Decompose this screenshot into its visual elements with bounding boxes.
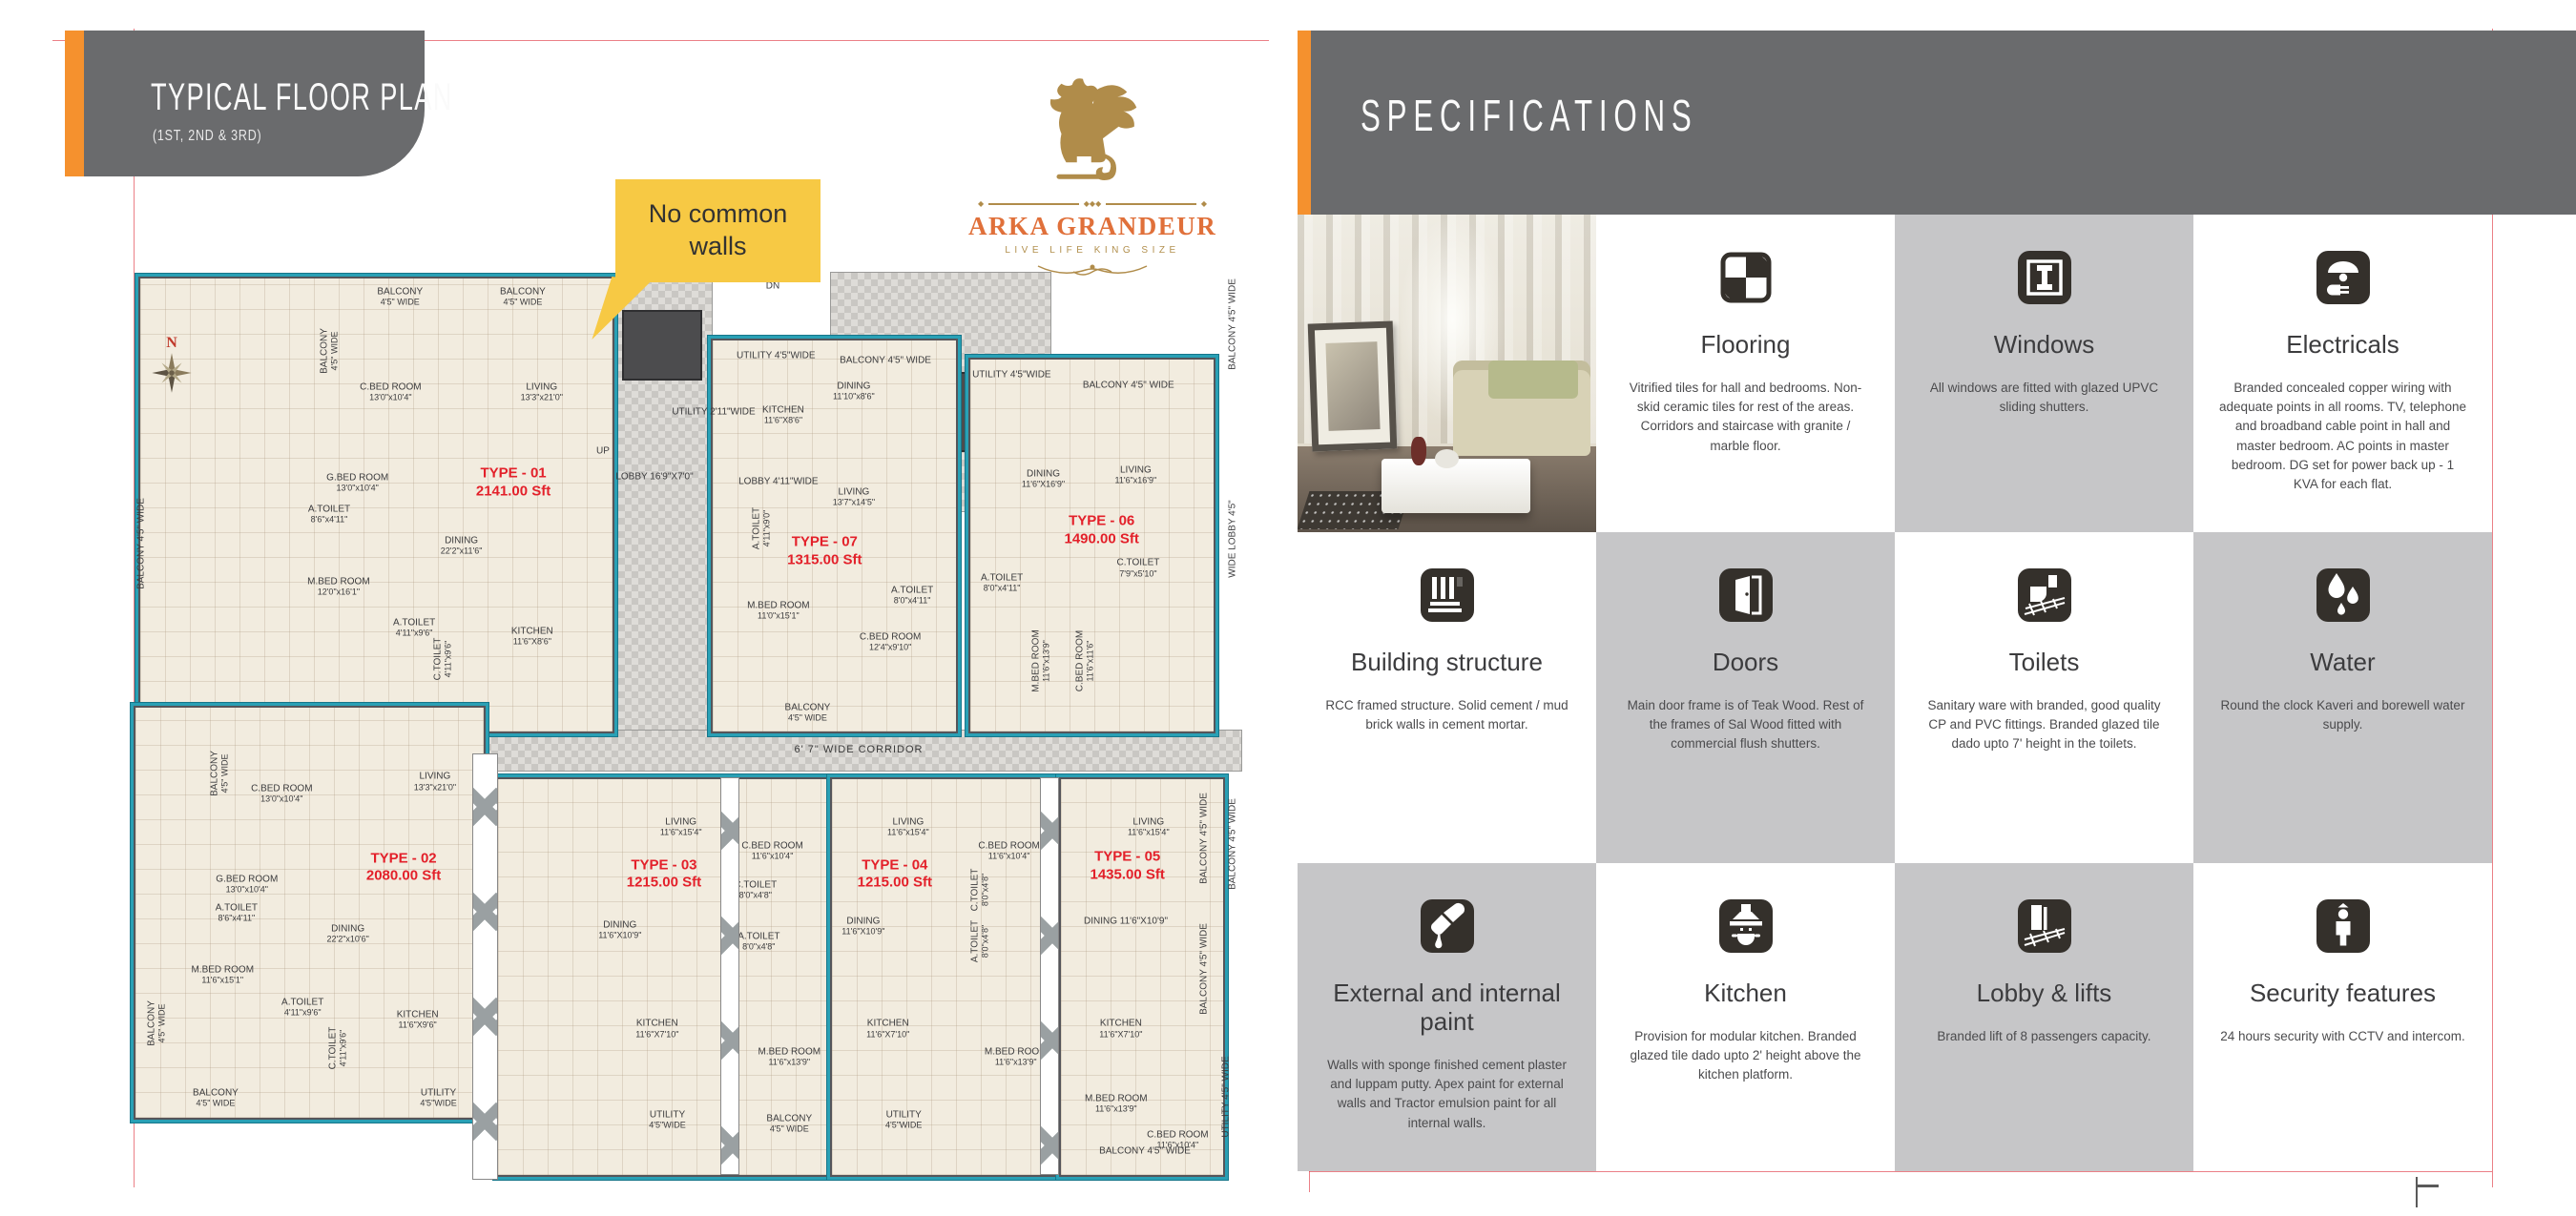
no-common-walls-callout: No common walls: [615, 179, 821, 282]
unit-type-02: TYPE - 022080.00 SftC.BED ROOM13'0"x10'4…: [134, 706, 486, 1120]
spec-card-text: All windows are fitted with glazed UPVC …: [1919, 379, 2170, 418]
spec-card-text: Vitrified tiles for hall and bedrooms. N…: [1620, 379, 1871, 456]
spec-card-title: Security features: [2224, 979, 2462, 1008]
unit-type-label: TYPE - 071315.00 Sft: [787, 534, 862, 570]
crop-mark: [1309, 1171, 2492, 1172]
spec-card-text: Main door frame is of Teak Wood. Rest of…: [1620, 696, 1871, 754]
flooring-tiles-icon: [1715, 247, 1776, 308]
winged-lion-icon: [1021, 76, 1164, 198]
room-label: BALCONY4'5" WIDE: [785, 702, 831, 722]
page-title: TYPICAL FLOOR PLAN: [151, 76, 453, 119]
unit-type-05: TYPE - 051435.00 SftLIVING11'6"x15'4"DIN…: [1059, 777, 1225, 1177]
room-label: KITCHEN11'6"X7'10": [635, 1019, 678, 1039]
room-label: A.TOILET8'0"x4'11": [981, 572, 1023, 592]
spec-card-title: Water: [2224, 649, 2462, 677]
spec-card-title: Kitchen: [1627, 979, 1865, 1008]
shaft-zone: [472, 753, 498, 1180]
kitchen-hood-icon: [1715, 896, 1776, 957]
room-label: DINING22'2"x11'6": [441, 536, 483, 556]
spec-card-title: Electricals: [2224, 331, 2462, 360]
room-label: A.TOILET8'0"x4'11": [891, 585, 933, 605]
room-label: BALCONY 4'5" WIDE: [1198, 923, 1209, 1015]
compass-rose-icon: [150, 351, 194, 395]
room-label: M.BED ROOM11'6"x15'1": [191, 964, 254, 984]
room-label: UTILITY4'5"WIDE: [649, 1109, 685, 1129]
brand-tagline: LIVE LIFE KING SIZE: [968, 245, 1216, 256]
window-icon: [2014, 247, 2075, 308]
unit-type-01: TYPE - 012141.00 SftBALCONY4'5" WIDEBALC…: [138, 277, 614, 733]
spec-card-title: Doors: [1627, 649, 1865, 677]
room-label: LIVING11'6"x16'9": [1115, 464, 1157, 484]
trim-tick: [2418, 1185, 2439, 1187]
room-label: BALCONY 4'5" WIDE: [1198, 793, 1209, 884]
lift-zone: [622, 310, 702, 381]
room-label: KITCHEN11'6"X8'6": [762, 404, 804, 424]
room-label: A.TOILET4'11"x9'6": [393, 617, 435, 637]
spec-card-electricals: ElectricalsBranded concealed copper wiri…: [2193, 215, 2492, 532]
room-label: BALCONY4'5" WIDE: [146, 1000, 166, 1046]
spec-card-toilets: ToiletsSanitary ware with branded, good …: [1895, 532, 2193, 863]
room-label: LIVING13'7"x14'5": [833, 486, 875, 506]
room-label: KITCHEN11'6"X7'10": [1099, 1019, 1142, 1039]
plan-label: UTILITY 4'5" WIDE: [1220, 1056, 1231, 1137]
room-label: M.BED ROOM11'6"x13'9": [1030, 629, 1050, 692]
room-label: BALCONY4'5" WIDE: [319, 328, 339, 374]
right-header-accent-bar: [1298, 31, 1311, 215]
shaft-zone: [720, 777, 739, 1175]
room-label: C.TOILET8'0"x4'8": [734, 880, 777, 900]
room-label: G.BED ROOM13'0"x10'4": [326, 472, 388, 492]
logo-divider: ◆◆◆◆◆: [978, 200, 1207, 208]
room-label: KITCHEN11'6"X9'6": [397, 1009, 439, 1029]
room-label: A.TOILET8'0"x4'8": [737, 932, 779, 952]
room-label: M.BED ROOM11'6"x13'9": [758, 1046, 821, 1066]
plan-label: BALCONY 4'5" WIDE: [1099, 1145, 1191, 1156]
room-label: M.BED ROOM12'0"x16'1": [307, 576, 370, 596]
compass-north-label: N: [141, 336, 202, 351]
interior-photo: [1298, 215, 1596, 532]
left-header-banner: TYPICAL FLOOR PLAN (1ST, 2ND & 3RD): [84, 31, 425, 176]
room-label: LIVING11'6"x15'4": [1128, 816, 1170, 836]
right-header-banner: SPECIFICATIONS: [1311, 31, 2576, 215]
room-label: M.BED ROOM11'6"x13'9": [1085, 1094, 1148, 1114]
spec-card-text: Branded lift of 8 passengers capacity.: [1919, 1027, 2170, 1046]
spec-card-title: Toilets: [1925, 649, 2164, 677]
room-label: C.BED ROOM11'6"x11'6": [1074, 630, 1094, 691]
room-label: M.BED ROOM11'6"x13'9": [985, 1046, 1048, 1066]
unit-type-07: TYPE - 071315.00 SftUTILITY 4'5"WIDEBALC…: [711, 339, 958, 733]
room-label: C.TOILET8'0"x4'8": [969, 869, 989, 912]
plan-label: BALCONY 4'5" WIDE: [135, 498, 146, 589]
spec-card-flooring: FlooringVitrified tiles for hall and bed…: [1596, 215, 1895, 532]
room-label: BALCONY4'5" WIDE: [209, 751, 229, 796]
spec-card-security-features: Security features24 hours security with …: [2193, 863, 2492, 1171]
room-label: UTILITY 4'5"WIDE: [972, 369, 1051, 380]
electrical-icon: [2313, 247, 2374, 308]
room-label: LIVING13'3"x21'0": [414, 772, 456, 792]
unit-type-label: TYPE - 022080.00 Sft: [366, 850, 441, 886]
room-label: LIVING11'6"x15'4": [887, 816, 929, 836]
corridor-label: 6' 7" WIDE CORRIDOR: [477, 730, 1240, 770]
spec-card-text: Branded concealed copper wiring with ade…: [2217, 379, 2468, 495]
room-label: BALCONY4'5" WIDE: [377, 286, 423, 306]
room-label: C.BED ROOM12'4"x9'10": [860, 631, 921, 651]
room-label: C.TOILET4'11"x9'6": [327, 1026, 347, 1069]
spec-card-text: Provision for modular kitchen. Branded g…: [1620, 1027, 1871, 1085]
plan-label: LOBBY 16'9"X7'0": [615, 471, 693, 482]
spec-card-text: Sanitary ware with branded, good quality…: [1919, 696, 2170, 754]
room-label: C.BED ROOM13'0"x10'4": [251, 784, 312, 804]
room-label: LOBBY 4'11"WIDE: [738, 476, 818, 486]
room-label: G.BED ROOM13'0"x10'4": [216, 874, 278, 894]
trim-tick: [2416, 1177, 2418, 1207]
callout-line2: walls: [689, 231, 746, 263]
spec-card-windows: WindowsAll windows are fitted with glaze…: [1895, 215, 2193, 532]
room-label: A.TOILET8'0"x4'8": [969, 920, 989, 962]
callout-line1: No common: [649, 198, 788, 231]
room-label: BALCONY 4'5" WIDE: [840, 355, 931, 365]
spec-card-water: WaterRound the clock Kaveri and borewell…: [2193, 532, 2492, 863]
unit-type-label: TYPE - 041215.00 Sft: [858, 856, 932, 893]
spec-card-title: Flooring: [1627, 331, 1865, 360]
security-guard-icon: [2313, 896, 2374, 957]
specifications-title: SPECIFICATIONS: [1361, 90, 1698, 141]
plan-label: WIDE LOBBY 4'5": [1227, 500, 1237, 577]
plan-label: DN: [766, 280, 779, 291]
lift-icon: [2014, 896, 2075, 957]
room-label: A.TOILET4'11"x9'6": [281, 997, 323, 1017]
water-drops-icon: [2313, 565, 2374, 626]
brand-name: ARKA GRANDEUR: [968, 212, 1216, 241]
room-label: C.BED ROOM11'6"x10'4": [741, 840, 802, 860]
spec-card-text: Round the clock Kaveri and borewell wate…: [2217, 696, 2468, 735]
spec-card-title: Lobby & lifts: [1925, 979, 2164, 1008]
unit-type-label: TYPE - 012141.00 Sft: [476, 464, 551, 501]
room-label: UTILITY4'5"WIDE: [420, 1087, 456, 1107]
room-label: LIVING13'3"x21'0": [521, 381, 563, 402]
room-label: DINING22'2"x10'6": [326, 923, 368, 943]
photo-vase: [1411, 437, 1426, 465]
room-label: BALCONY4'5" WIDE: [193, 1087, 239, 1107]
brand-logo: ◆◆◆◆◆ ARKA GRANDEUR LIVE LIFE KING SIZE: [968, 76, 1216, 284]
room-label: A.TOILET4'11"x9'0": [751, 507, 771, 549]
floor-plan: 6' 7" WIDE CORRIDOR TYPE - 012141.00 Sft…: [76, 272, 1245, 1178]
left-header-accent-bar: [65, 31, 84, 176]
plan-label: BALCONY 4'5" WIDE: [1227, 278, 1237, 370]
room-label: DINING11'10"x8'6": [833, 381, 875, 402]
toilet-icon: [2014, 565, 2075, 626]
room-label: BALCONY 4'5" WIDE: [1083, 381, 1174, 391]
specifications-grid: FlooringVitrified tiles for hall and bed…: [1298, 215, 2492, 1171]
photo-wall-art: [1307, 320, 1397, 451]
plan-label: UTILITY 2'11"WIDE: [672, 406, 755, 417]
unit-type-label: TYPE - 061490.00 Sft: [1064, 513, 1138, 549]
room-label: LIVING11'6"x15'4": [660, 816, 702, 836]
shaft-zone: [1040, 777, 1059, 1175]
unit-type-03: TYPE - 031215.00 SftLIVING11'6"x15'4"C.B…: [496, 777, 839, 1177]
room-label: C.TOILET7'9"x5'10": [1117, 558, 1160, 578]
room-label: DINING11'6"X10'9": [598, 919, 641, 939]
spec-card-kitchen: KitchenProvision for modular kitchen. Br…: [1596, 863, 1895, 1171]
spec-card-title: Windows: [1925, 331, 2164, 360]
room-label: BALCONY4'5" WIDE: [766, 1113, 812, 1133]
room-label: M.BED ROOM11'0"x15'1": [747, 600, 810, 620]
plan-label: BALCONY 4'5" WIDE: [1227, 798, 1237, 890]
room-label: UTILITY4'5"WIDE: [885, 1109, 922, 1129]
spec-card-text: Walls with sponge finished cement plaste…: [1321, 1056, 1572, 1133]
spec-card-text: RCC framed structure. Solid cement / mud…: [1321, 696, 1572, 735]
brochure-page: TYPICAL FLOOR PLAN (1ST, 2ND & 3RD) ◆◆◆◆…: [0, 0, 2576, 1216]
room-label: A.TOILET8'6"x4'11": [308, 504, 350, 524]
spec-card-building-structure: Building structureRCC framed structure. …: [1298, 532, 1596, 863]
paint-brush-icon: [1417, 896, 1478, 957]
spec-card-text: 24 hours security with CCTV and intercom…: [2217, 1027, 2468, 1046]
unit-type-label: TYPE - 031215.00 Sft: [627, 856, 701, 893]
room-label: BALCONY4'5" WIDE: [500, 286, 546, 306]
page-subtitle: (1ST, 2ND & 3RD): [153, 128, 261, 145]
room-label: KITCHEN11'6"X8'6": [511, 627, 553, 647]
room-label: C.BED ROOM11'6"x10'4": [978, 840, 1039, 860]
room-label: DINING11'6"X16'9": [1022, 468, 1065, 488]
spec-card-doors: DoorsMain door frame is of Teak Wood. Re…: [1596, 532, 1895, 863]
plan-label: UP: [596, 445, 610, 456]
room-label: C.TOILET4'11"x9'6": [432, 638, 452, 681]
building-structure-icon: [1417, 565, 1478, 626]
room-label: DINING 11'6"X10'9": [1084, 917, 1168, 927]
spec-card-title: Building structure: [1328, 649, 1567, 677]
unit-type-04: TYPE - 041215.00 SftLIVING11'6"x15'4"DIN…: [830, 777, 1058, 1177]
spec-card-external-and-internal-paint: External and internal paintWalls with sp…: [1298, 863, 1596, 1171]
spec-card-lobby-lifts: Lobby & liftsBranded lift of 8 passenger…: [1895, 863, 2193, 1171]
room-label: KITCHEN11'6"X7'10": [866, 1019, 909, 1039]
room-label: UTILITY 4'5"WIDE: [737, 351, 816, 361]
spec-card-title: External and internal paint: [1328, 979, 1567, 1037]
room-label: DINING11'6"X10'9": [841, 916, 884, 936]
photo-cushion: [1488, 361, 1578, 399]
compass-rose: N: [141, 336, 202, 400]
unit-type-06: TYPE - 061490.00 SftUTILITY 4'5"WIDEBALC…: [968, 358, 1215, 733]
photo-coffee-table: [1381, 459, 1531, 513]
room-label: A.TOILET8'6"x4'11": [216, 902, 258, 922]
logo-flourish-icon: [1030, 258, 1154, 279]
unit-type-label: TYPE - 051435.00 Sft: [1090, 849, 1164, 885]
door-icon: [1715, 565, 1776, 626]
room-label: C.BED ROOM13'0"x10'4": [360, 381, 421, 402]
